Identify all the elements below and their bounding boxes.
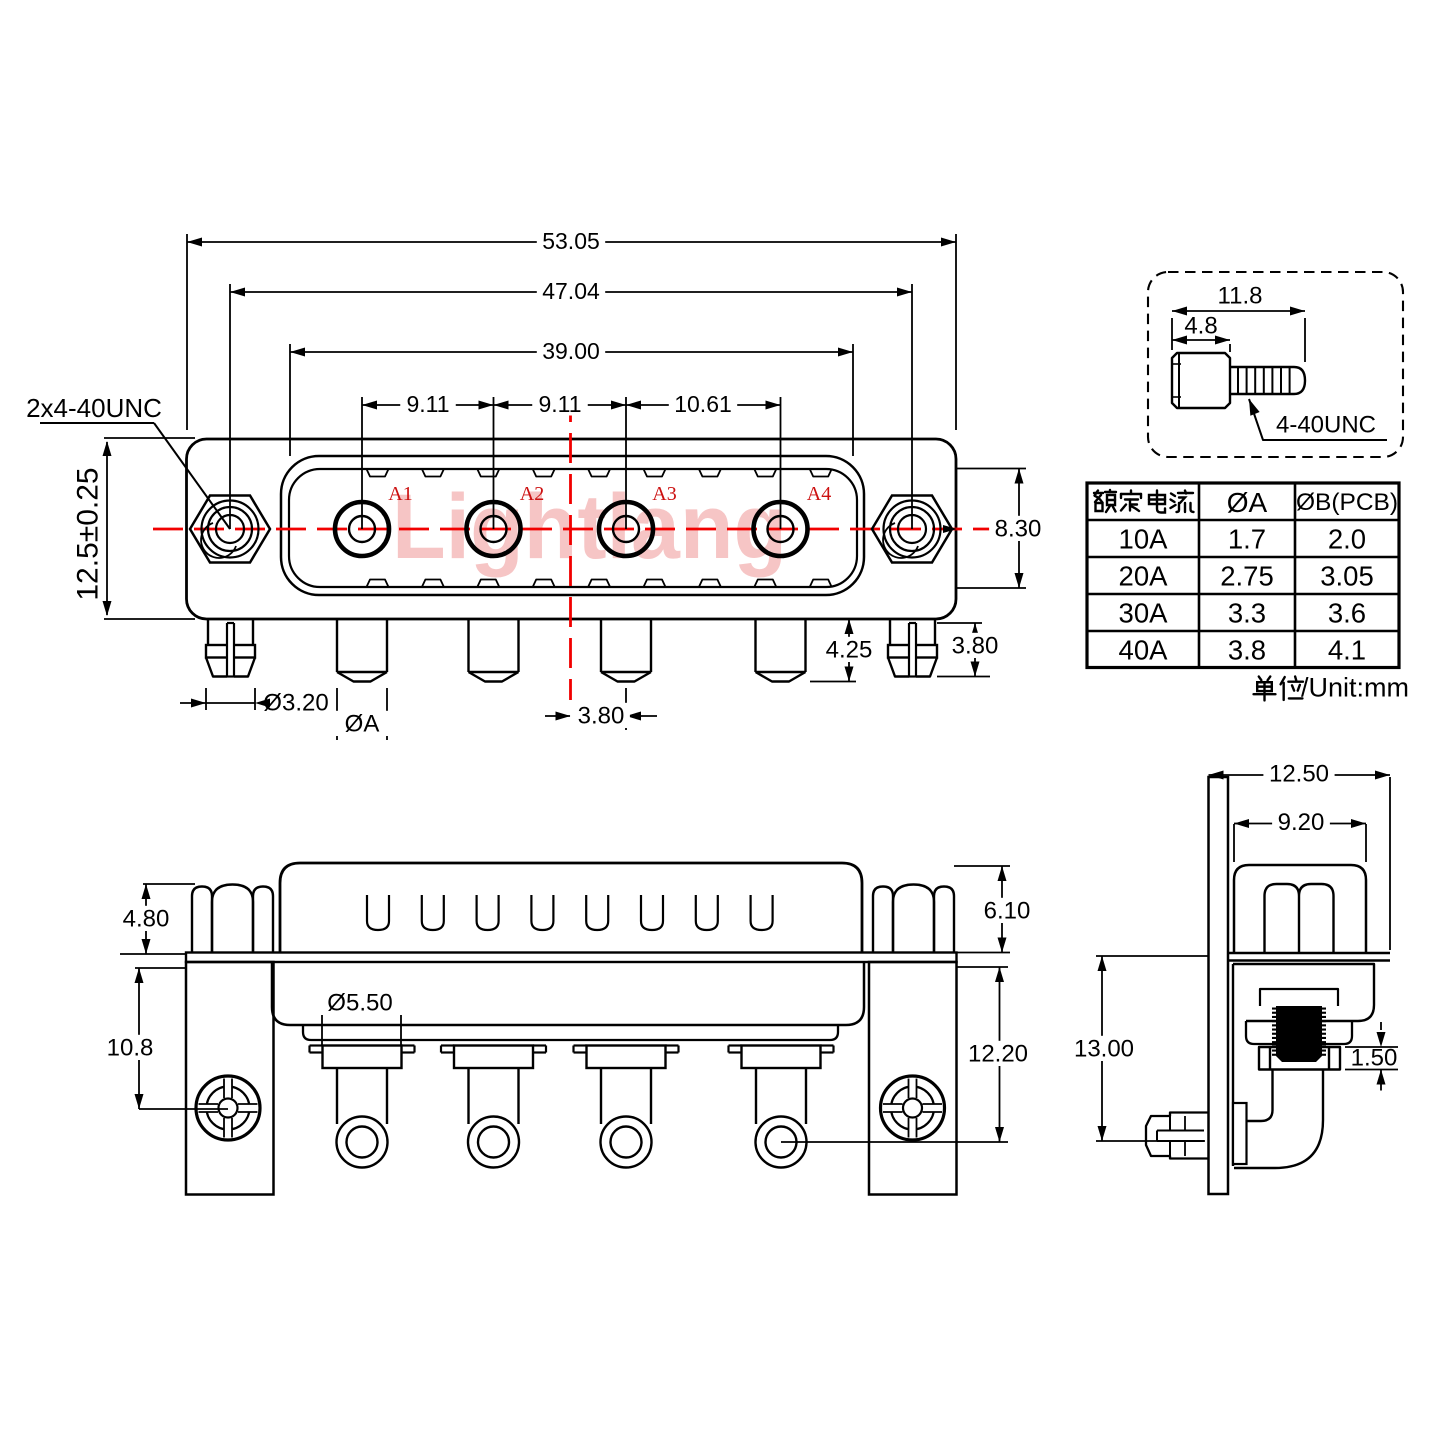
svg-text:A1: A1 [388, 483, 412, 505]
svg-text:ØA: ØA [345, 711, 380, 738]
svg-text:2x4-40UNC: 2x4-40UNC [26, 393, 162, 423]
svg-text:3.80: 3.80 [952, 633, 999, 660]
svg-text:13.00: 13.00 [1074, 1036, 1134, 1063]
svg-text:11.8: 11.8 [1218, 283, 1263, 310]
svg-text:2.75: 2.75 [1220, 561, 1274, 592]
svg-text:9.20: 9.20 [1278, 809, 1325, 836]
svg-text:A4: A4 [807, 483, 831, 505]
svg-text:12.50: 12.50 [1269, 761, 1329, 788]
svg-text:10.8: 10.8 [107, 1035, 154, 1062]
svg-text:39.00: 39.00 [542, 338, 600, 364]
svg-text:1.50: 1.50 [1351, 1045, 1398, 1072]
svg-text:9.11: 9.11 [406, 391, 449, 417]
svg-text:3.05: 3.05 [1320, 561, 1374, 592]
svg-text:Lightlang: Lightlang [392, 476, 787, 578]
svg-text:/Unit:mm: /Unit:mm [1301, 673, 1409, 703]
svg-text:20A: 20A [1119, 561, 1169, 592]
svg-text:12.5±0.25: 12.5±0.25 [72, 467, 105, 600]
svg-text:2.0: 2.0 [1328, 524, 1366, 555]
svg-text:Ø5.50: Ø5.50 [327, 990, 392, 1017]
svg-text:9.11: 9.11 [538, 391, 581, 417]
svg-text:4.1: 4.1 [1328, 634, 1366, 665]
svg-text:8.30: 8.30 [995, 516, 1042, 543]
svg-text:6.10: 6.10 [984, 898, 1031, 925]
svg-text:4.8: 4.8 [1184, 313, 1217, 340]
svg-text:3.3: 3.3 [1228, 598, 1266, 629]
svg-text:4.80: 4.80 [123, 906, 170, 933]
svg-text:4-40UNC: 4-40UNC [1276, 412, 1376, 439]
svg-text:3.80: 3.80 [578, 703, 625, 730]
svg-text:1.7: 1.7 [1228, 524, 1266, 555]
svg-text:3.8: 3.8 [1228, 634, 1266, 665]
svg-text:10.61: 10.61 [674, 391, 732, 417]
svg-text:53.05: 53.05 [542, 228, 600, 254]
svg-text:A2: A2 [520, 483, 544, 505]
svg-text:A3: A3 [652, 483, 676, 505]
svg-text:ØB(PCB): ØB(PCB) [1296, 489, 1398, 516]
svg-text:40A: 40A [1119, 634, 1169, 665]
svg-text:10A: 10A [1119, 524, 1169, 555]
svg-text:47.04: 47.04 [542, 278, 600, 304]
svg-text:4.25: 4.25 [826, 637, 873, 664]
svg-text:3.6: 3.6 [1328, 598, 1366, 629]
svg-text:12.20: 12.20 [968, 1041, 1028, 1068]
svg-text:30A: 30A [1119, 598, 1169, 629]
svg-text:ØA: ØA [1227, 487, 1268, 518]
